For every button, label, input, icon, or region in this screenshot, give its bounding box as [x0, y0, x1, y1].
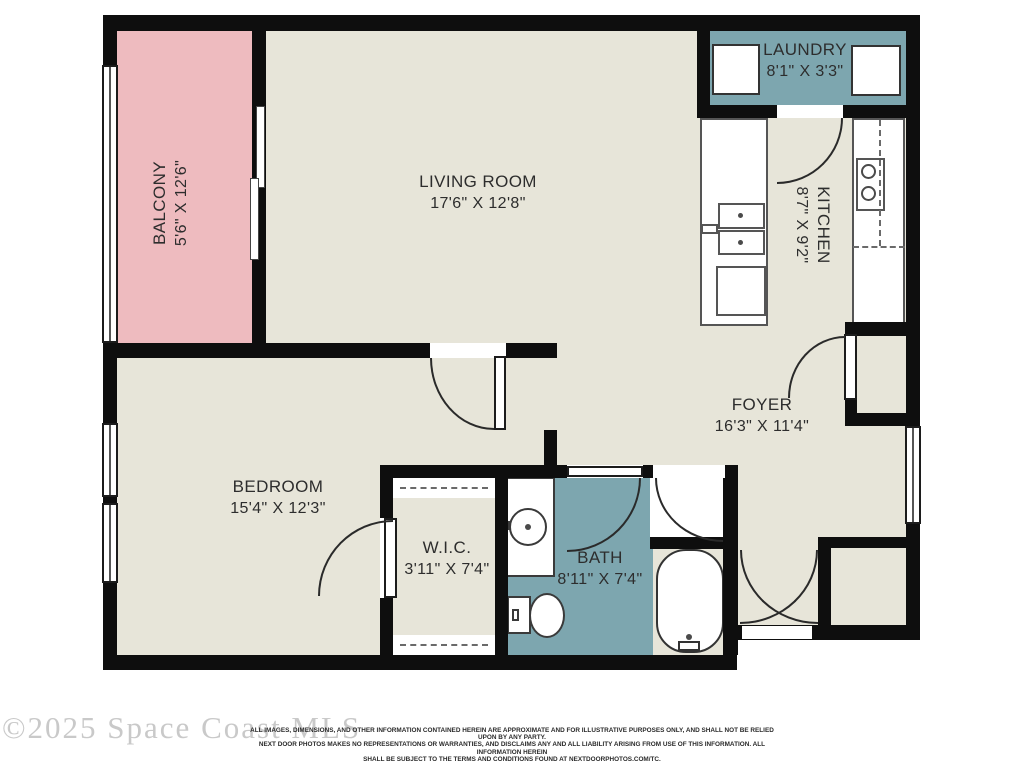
stove-burner [861, 186, 876, 201]
wic-shelf-line [400, 487, 488, 489]
window-line [109, 425, 111, 495]
disclaimer-text: ALL IMAGES, DIMENSIONS, AND OTHER INFORM… [248, 727, 776, 763]
room-dims: 8'1" X 3'3" [725, 61, 885, 83]
wall [818, 537, 831, 625]
tub-drain [686, 634, 692, 640]
room-name: BATH [520, 547, 680, 569]
upper-cabinet-line [853, 246, 905, 248]
tub-faucet [678, 641, 700, 651]
bedroom-label: BEDROOM 15'4" X 12'3" [198, 476, 358, 522]
room-name: W.I.C. [367, 537, 527, 559]
sink-drain [738, 213, 743, 218]
disclaimer-line: NEXT DOOR PHOTOS MAKES NO REPRESENTATION… [248, 741, 776, 755]
wic-label: W.I.C. 3'11" X 7'4" [367, 537, 527, 581]
disclaimer-line: SHALL BE SUBJECT TO THE TERMS AND CONDIT… [248, 756, 776, 763]
wall [103, 655, 737, 670]
room-dims: 8'11" X 7'4" [520, 569, 680, 591]
room-name: BEDROOM [198, 476, 358, 498]
railing-line [109, 67, 111, 341]
wall [820, 537, 906, 548]
wall [103, 15, 920, 31]
closet-door-opening [742, 626, 812, 639]
window-line [109, 505, 111, 581]
sink-drain [738, 240, 743, 245]
toilet-tank [507, 596, 531, 634]
wall [697, 15, 710, 118]
room-name: FOYER [682, 394, 842, 416]
stove-burner [861, 164, 876, 179]
kitchen-faucet [701, 224, 718, 234]
bedroom-door-leaf [494, 356, 506, 430]
laundry-label: LAUNDRY 8'1" X 3'3" [725, 39, 885, 85]
balcony-label: BALCONY 5'6" X 12'6" [149, 118, 193, 288]
toilet-bowl [529, 593, 565, 638]
bath-door-leaf [567, 466, 643, 477]
kitchen-label: KITCHEN 8'7" X 9'2" [790, 145, 834, 305]
room-name: KITCHEN [812, 145, 834, 305]
room-name: LAUNDRY [725, 39, 885, 61]
room-dims: 17'6" X 12'8" [398, 193, 558, 215]
dishwasher [716, 266, 766, 316]
room-name: BALCONY [149, 118, 171, 288]
window-line [912, 428, 914, 522]
room-dims: 5'6" X 12'6" [171, 118, 193, 288]
door-opening [777, 105, 843, 118]
bath-label: BATH 8'11" X 7'4" [520, 547, 680, 591]
entry-closet-door-leaf [844, 334, 857, 400]
toilet-flush [512, 609, 519, 621]
room-name: LIVING ROOM [398, 171, 558, 193]
wic-shelf-line [400, 644, 488, 646]
sink-drain [525, 524, 531, 530]
sliding-door-panel [256, 106, 265, 188]
room-dims: 3'11" X 7'4" [367, 559, 527, 581]
foyer-label: FOYER 16'3" X 11'4" [682, 394, 842, 440]
door-opening [653, 465, 725, 478]
living-room-label: LIVING ROOM 17'6" X 12'8" [398, 171, 558, 217]
upper-cabinet-line [879, 120, 881, 246]
room-dims: 15'4" X 12'3" [198, 498, 358, 520]
floor-plan: BALCONY 5'6" X 12'6" LIVING ROOM 17'6" X… [0, 0, 1024, 768]
room-dims: 8'7" X 9'2" [790, 145, 812, 305]
room-dims: 16'3" X 11'4" [682, 416, 842, 438]
sliding-door-panel [250, 178, 259, 260]
disclaimer-line: ALL IMAGES, DIMENSIONS, AND OTHER INFORM… [248, 727, 776, 741]
wall [723, 465, 738, 655]
